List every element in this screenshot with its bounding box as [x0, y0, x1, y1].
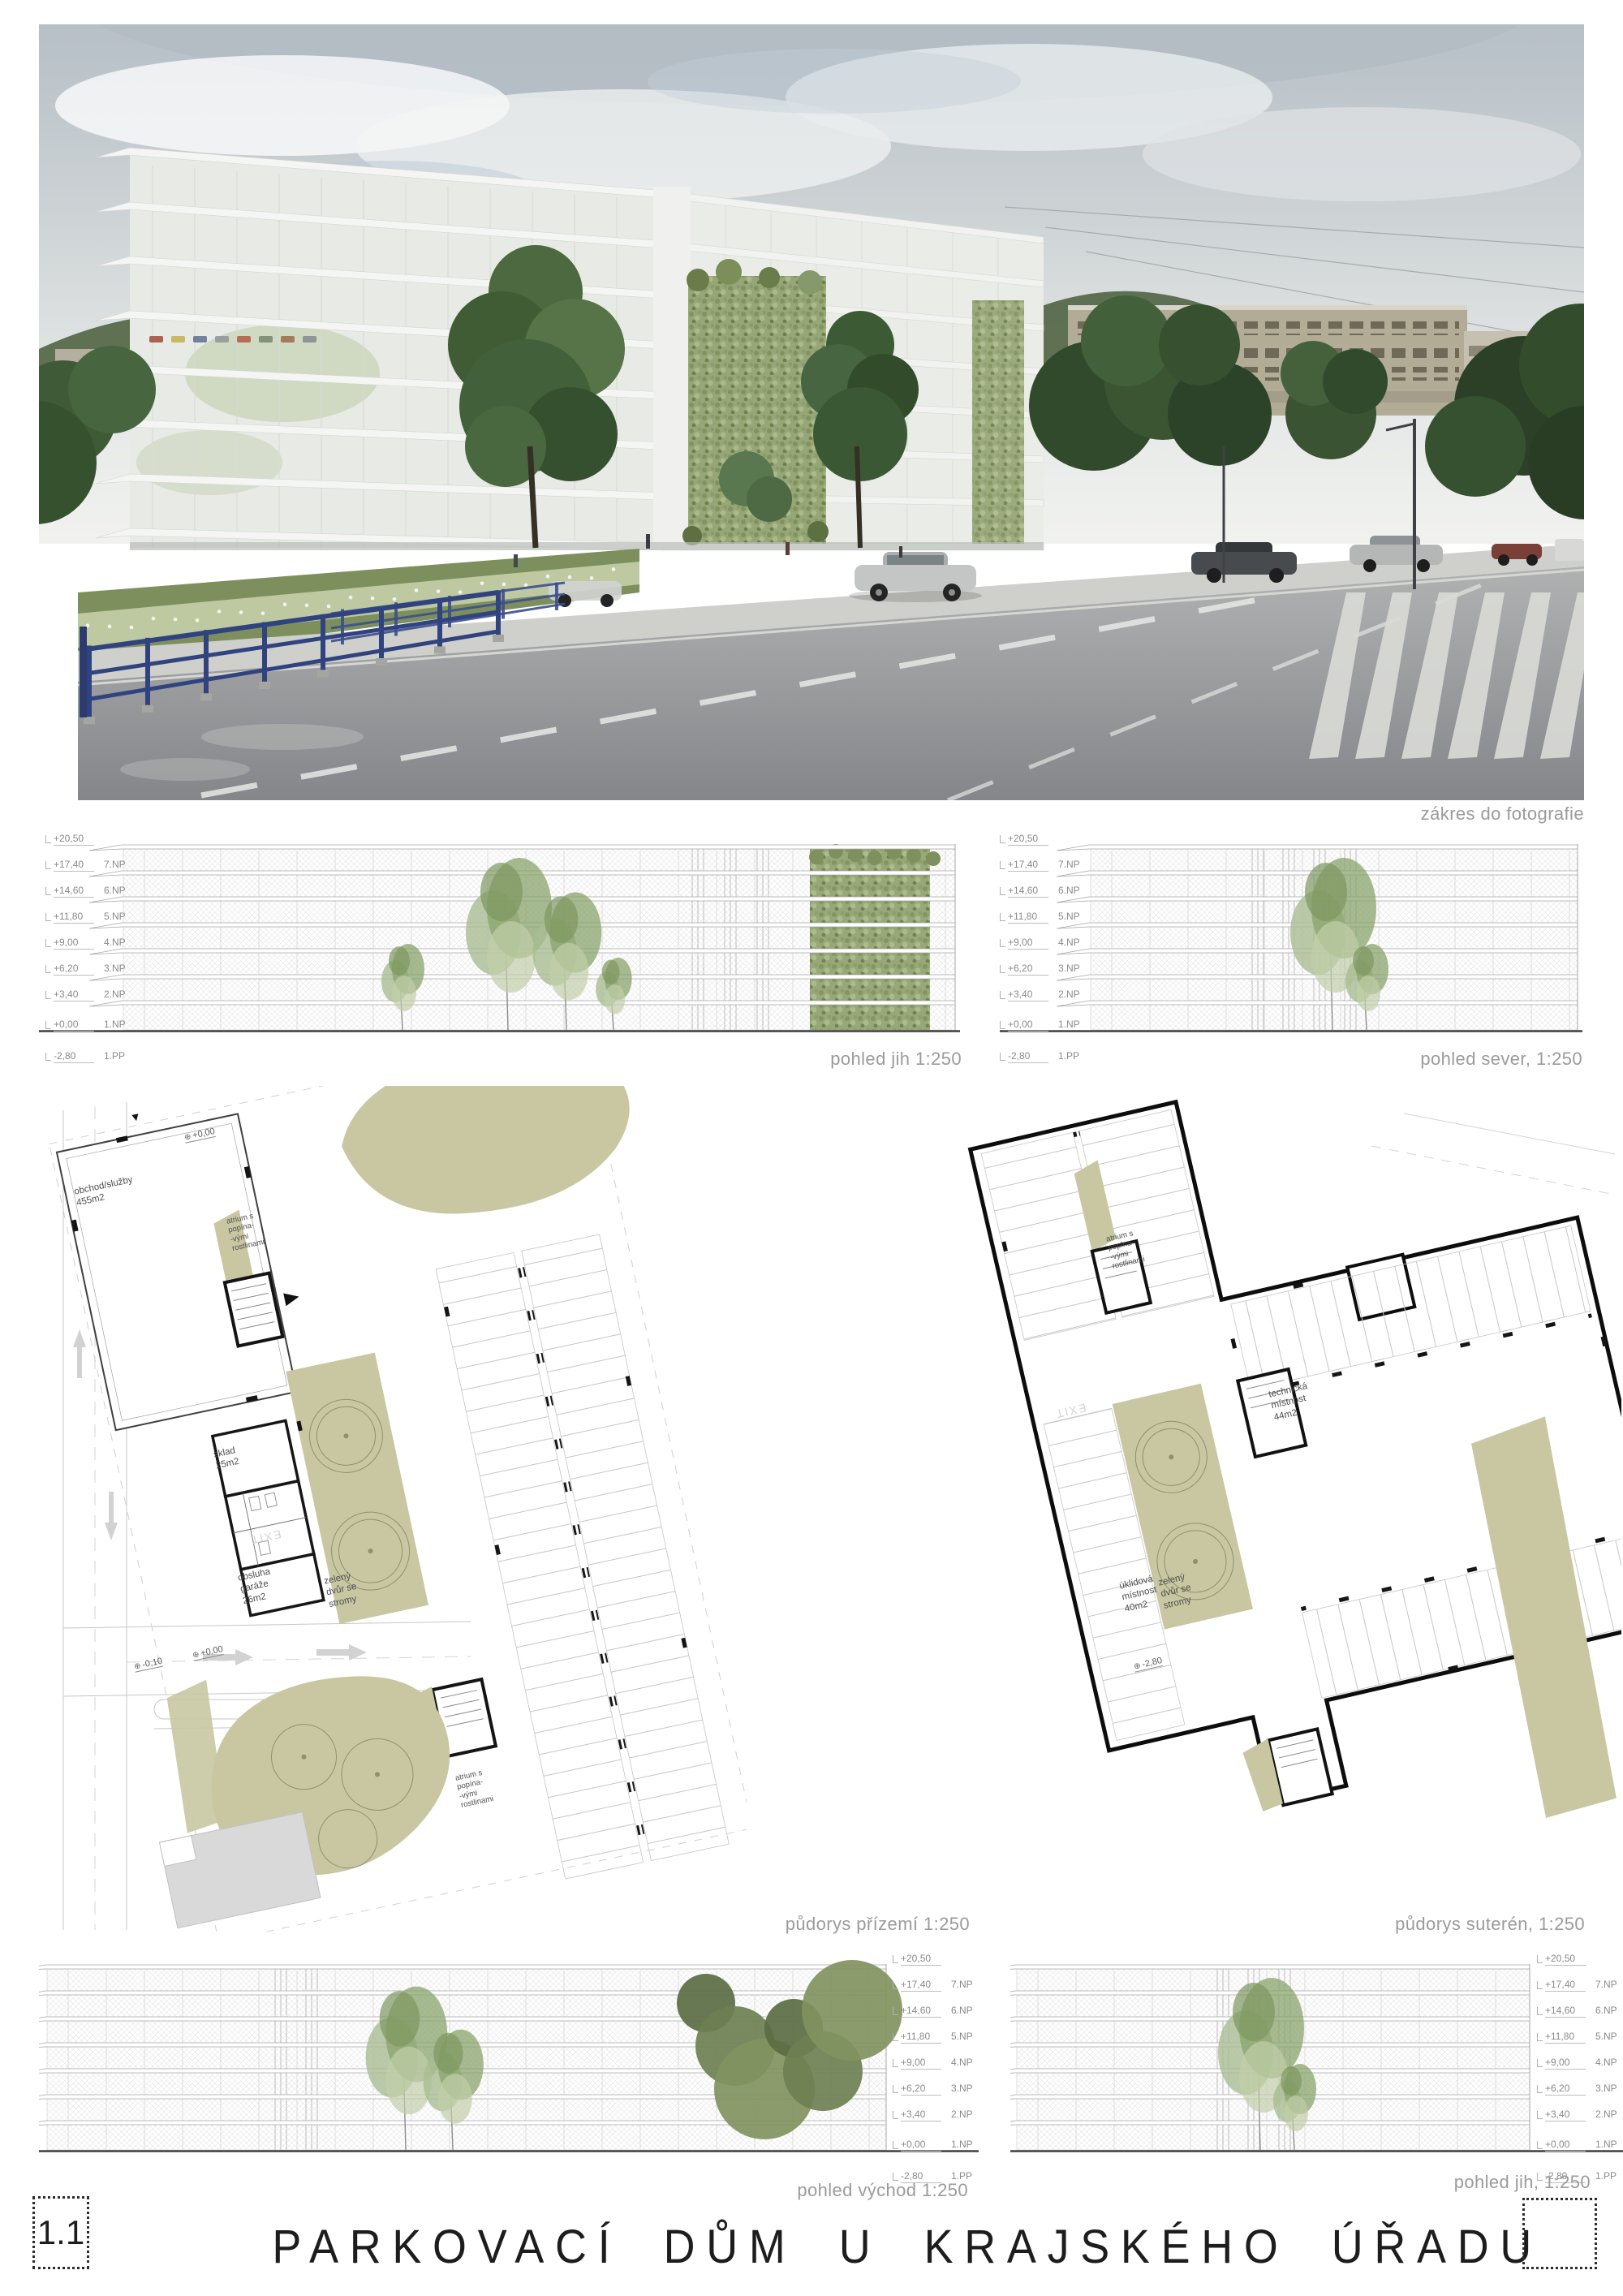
level-label-row: +17,407.NP: [45, 859, 126, 871]
level-elevation: +17,40: [1545, 1979, 1586, 1992]
sheet-number: 1.1: [37, 2213, 84, 2252]
level-floor: 7.NP: [1595, 1979, 1617, 1990]
elevation-south-top: +20,50+17,407.NP+14,606.NP+11,805.NP+9,0…: [39, 833, 960, 1076]
caption-ground-plan: půdorys přízemí 1:250: [674, 1914, 970, 1935]
level-floor: 6.NP: [104, 885, 126, 896]
level-floor: 1.NP: [1058, 1019, 1080, 1030]
level-label-row: +3,402.NP: [1000, 989, 1080, 1001]
level-floor: 7.NP: [104, 859, 126, 870]
level-label-row: +6,203.NP: [1000, 963, 1080, 975]
level-elevation: +9,00: [901, 2057, 941, 2070]
caption-east-elevation: pohled východ 1:250: [674, 2180, 968, 2201]
level-elevation: +17,40: [1008, 859, 1048, 872]
building-plan: [32, 1086, 747, 1932]
level-floor: 1.PP: [1058, 1050, 1079, 1062]
caption-south2-elevation: pohled jih, 1:250: [1454, 2172, 1591, 2193]
level-elevation: +20,50: [901, 1953, 941, 1966]
level-elevation: +3,40: [1545, 2109, 1586, 2122]
level-label-row: +6,203.NP: [1537, 2083, 1617, 2095]
elevation-south-bottom: +20,50+17,407.NP+14,606.NP+11,805.NP+9,0…: [1010, 1953, 1623, 2196]
photomontage-image: [39, 24, 1584, 800]
level-label-row: +11,805.NP: [45, 911, 126, 923]
board-title: PARKOVACÍ DŮM U KRAJSKÉHO ÚŘADU: [272, 2219, 1496, 2274]
level-floor: 2.NP: [951, 2109, 973, 2120]
level-floor: 5.NP: [1595, 2031, 1617, 2042]
green-area-top: [328, 1086, 645, 1239]
level-elevation: +9,00: [1545, 2057, 1586, 2070]
level-elevation: -2,80: [1008, 1050, 1048, 1063]
level-label-row: +9,004.NP: [1000, 937, 1080, 949]
level-elevation: +0,00: [901, 2139, 941, 2152]
level-floor: 6.NP: [1595, 2005, 1617, 2016]
level-floor: 1.PP: [104, 1050, 125, 1062]
caption-south-elevation: pohled jih 1:250: [649, 1049, 962, 1070]
level-floor: 7.NP: [1058, 859, 1080, 870]
label-storage: sklad 25m2: [213, 1445, 240, 1472]
level-floor: 2.NP: [1595, 2109, 1617, 2120]
presentation-board: zákres do fotografie +20,50+17,407.NP+14…: [0, 0, 1623, 2296]
level-label-row: -2,801.PP: [1000, 1050, 1079, 1062]
stamp-box: [1522, 2198, 1597, 2269]
level-elevation: +6,20: [54, 963, 94, 976]
section-marker: ▼: [128, 1109, 142, 1125]
level-label-row: +20,50: [1537, 1953, 1595, 1965]
level-labels: +20,50+17,407.NP+14,606.NP+11,805.NP+9,0…: [45, 833, 136, 1076]
level-floor: 5.NP: [1058, 911, 1080, 922]
level-elevation: +20,50: [1008, 833, 1048, 846]
stair-core-bottom: [1241, 1727, 1332, 1812]
level-label-row: +3,402.NP: [1537, 2109, 1617, 2121]
basement-outline: [971, 1097, 1621, 1910]
elevation-drawing: [39, 1953, 979, 2196]
level-floor: 1.NP: [1595, 2139, 1617, 2150]
level-label-row: +9,004.NP: [893, 2057, 973, 2069]
level-label-row: +11,805.NP: [893, 2031, 973, 2043]
level-labels: +20,50+17,407.NP+14,606.NP+11,805.NP+9,0…: [1537, 1953, 1623, 2196]
level-elevation: +11,80: [1545, 2031, 1586, 2044]
level-elevation: +14,60: [1545, 2005, 1586, 2018]
elevation-drawing: [39, 833, 960, 1076]
level-floor: 1.NP: [951, 2139, 973, 2150]
level-floor: 3.NP: [104, 963, 126, 974]
level-label-row: +14,606.NP: [893, 2005, 973, 2017]
level-label-row: +0,001.NP: [1000, 1019, 1080, 1031]
elevation-north-top: +20,50+17,407.NP+14,606.NP+11,805.NP+9,0…: [1000, 833, 1582, 1076]
shop-unit: [57, 1112, 297, 1430]
level-floor: 4.NP: [951, 2057, 973, 2068]
level-elevation: +14,60: [901, 2005, 941, 2018]
level-floor: 1.PP: [1595, 2170, 1617, 2182]
level-floor: 4.NP: [1595, 2057, 1617, 2068]
level-floor: 3.NP: [1058, 963, 1080, 974]
level-label-row: +3,402.NP: [45, 989, 126, 1001]
existing-building: [160, 1812, 321, 1928]
level-label-row: +11,805.NP: [1537, 2031, 1617, 2043]
level-elevation: -2,80: [54, 1050, 94, 1063]
level-label-row: +6,203.NP: [893, 2083, 973, 2095]
level-label-row: +20,50: [45, 833, 104, 845]
level-floor: 2.NP: [104, 989, 126, 1000]
level-elevation: +0,00: [1008, 1019, 1048, 1032]
level-floor: 4.NP: [1058, 937, 1080, 948]
level-label-row: +6,203.NP: [45, 963, 126, 975]
level-elevation: +0,00: [54, 1019, 94, 1032]
level-floor: 6.NP: [1058, 885, 1080, 896]
level-floor: 5.NP: [951, 2031, 973, 2042]
level-floor: 3.NP: [1595, 2083, 1617, 2094]
label-garage-service: obsluha garáže 26m2: [237, 1566, 276, 1608]
level-labels: +20,50+17,407.NP+14,606.NP+11,805.NP+9,0…: [893, 1953, 984, 2196]
level-label-row: +0,001.NP: [1537, 2139, 1617, 2151]
level-label-row: +11,805.NP: [1000, 911, 1080, 923]
level-floor: 1.NP: [104, 1019, 126, 1030]
level-label-row: +14,606.NP: [1000, 885, 1080, 897]
level-elevation: +3,40: [54, 989, 94, 1002]
level-elevation: +9,00: [54, 937, 94, 950]
level-elevation: +11,80: [901, 2031, 941, 2044]
level-elevation: +3,40: [901, 2109, 941, 2122]
sheet-number-box: 1.1: [32, 2196, 89, 2269]
level-elevation: +17,40: [901, 1979, 941, 1992]
stair-core-top: [225, 1268, 307, 1346]
level-elevation: +17,40: [54, 859, 94, 872]
level-label-row: -2,801.PP: [45, 1050, 125, 1062]
level-floor: 6.NP: [951, 2005, 973, 2016]
level-label-row: +9,004.NP: [45, 937, 126, 949]
level-floor: 3.NP: [951, 2083, 973, 2094]
level-floor: 4.NP: [104, 937, 126, 948]
level-label-row: +20,50: [1000, 833, 1058, 845]
photo-caption: zákres do fotografie: [1421, 803, 1584, 825]
level-label-row: +0,001.NP: [45, 1019, 126, 1031]
level-elevation: +14,60: [1008, 885, 1048, 898]
ground-floor-plan: [32, 1086, 747, 1932]
level-floor: 2.NP: [1058, 989, 1080, 1000]
level-label-row: +17,407.NP: [893, 1979, 973, 1991]
level-elevation: +9,00: [1008, 937, 1048, 950]
caption-north-elevation: pohled sever, 1:250: [1420, 1049, 1582, 1070]
level-label-row: +17,407.NP: [1537, 1979, 1617, 1991]
level-floor: 7.NP: [951, 1979, 973, 1990]
level-elevation: +6,20: [1008, 963, 1048, 976]
level-elevation: +11,80: [1008, 911, 1048, 924]
level-elevation: +20,50: [1545, 1953, 1586, 1966]
level-floor: 5.NP: [104, 911, 126, 922]
level-elevation: +14,60: [54, 885, 94, 898]
level-elevation: +11,80: [54, 911, 94, 924]
level-elevation: +0,00: [1545, 2139, 1586, 2152]
level-elevation: +6,20: [901, 2083, 941, 2096]
elevation-drawing: [1010, 1953, 1623, 2196]
level-labels: +20,50+17,407.NP+14,606.NP+11,805.NP+9,0…: [1000, 833, 1091, 1076]
level-label-row: +20,50: [893, 1953, 951, 1965]
basement-plan: [917, 1097, 1621, 1933]
elevation-east-bottom: +20,50+17,407.NP+14,606.NP+11,805.NP+9,0…: [39, 1953, 979, 2196]
level-label-row: +0,001.NP: [893, 2139, 973, 2151]
level-elevation: +6,20: [1545, 2083, 1586, 2096]
level-label-row: +14,606.NP: [45, 885, 126, 897]
caption-basement-plan: půdorys suterén, 1:250: [1395, 1914, 1585, 1935]
level-label-row: +9,004.NP: [1537, 2057, 1617, 2069]
level-label-row: +17,407.NP: [1000, 859, 1080, 871]
level-elevation: +3,40: [1008, 989, 1048, 1002]
level-label-row: +14,606.NP: [1537, 2005, 1617, 2017]
level-elevation: +20,50: [54, 833, 94, 846]
level-label-row: +3,402.NP: [893, 2109, 973, 2121]
